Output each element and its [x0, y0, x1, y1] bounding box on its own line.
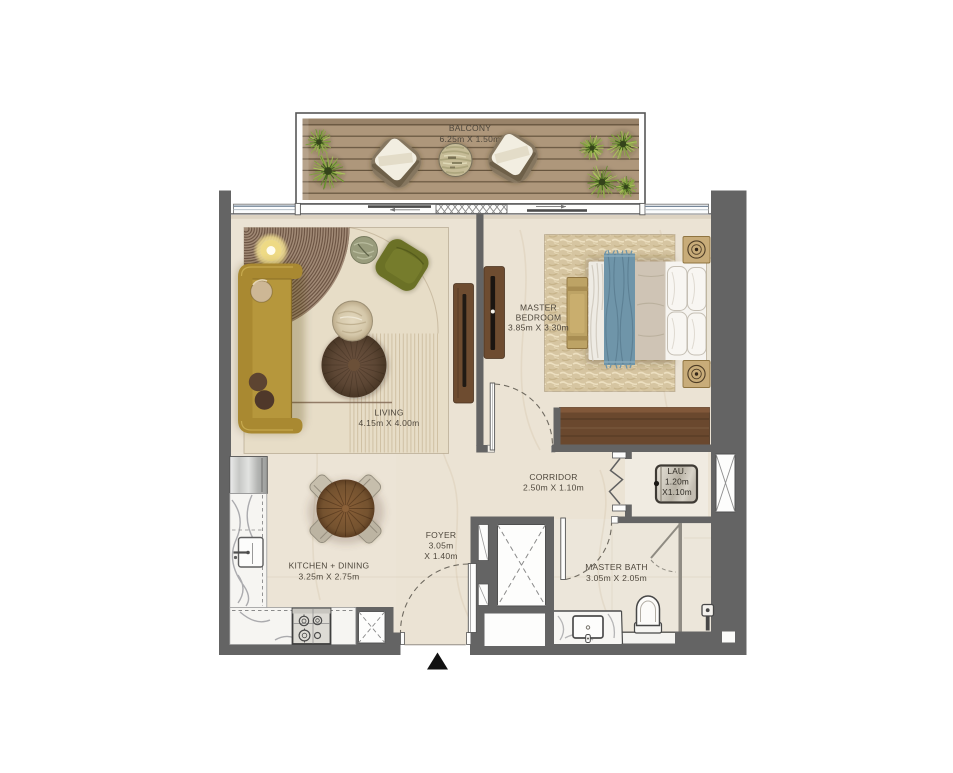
- svg-text:CORRIDOR: CORRIDOR: [529, 472, 577, 482]
- svg-text:LIVING: LIVING: [374, 408, 403, 418]
- svg-text:MASTER BATH: MASTER BATH: [585, 562, 648, 572]
- svg-text:X1.10m: X1.10m: [662, 487, 692, 497]
- svg-text:3.05m X 2.05m: 3.05m X 2.05m: [586, 573, 647, 583]
- svg-text:3.05m: 3.05m: [429, 541, 454, 551]
- svg-text:MASTER: MASTER: [520, 303, 557, 313]
- svg-text:6.25m X 1.50m: 6.25m X 1.50m: [440, 134, 501, 144]
- svg-text:4.15m X 4.00m: 4.15m X 4.00m: [359, 418, 420, 428]
- svg-text:LAU.: LAU.: [667, 466, 686, 476]
- svg-text:2.50m X 1.10m: 2.50m X 1.10m: [523, 483, 584, 493]
- svg-text:X 1.40m: X 1.40m: [424, 551, 457, 561]
- svg-text:FOYER: FOYER: [426, 530, 457, 540]
- svg-text:3.85m X 3.30m: 3.85m X 3.30m: [508, 323, 569, 333]
- svg-text:1.20m: 1.20m: [665, 477, 689, 487]
- svg-text:BALCONY: BALCONY: [449, 123, 491, 133]
- svg-text:3.25m X 2.75m: 3.25m X 2.75m: [299, 572, 360, 582]
- svg-text:KITCHEN + DINING: KITCHEN + DINING: [289, 561, 370, 571]
- svg-text:BEDROOM: BEDROOM: [516, 313, 562, 323]
